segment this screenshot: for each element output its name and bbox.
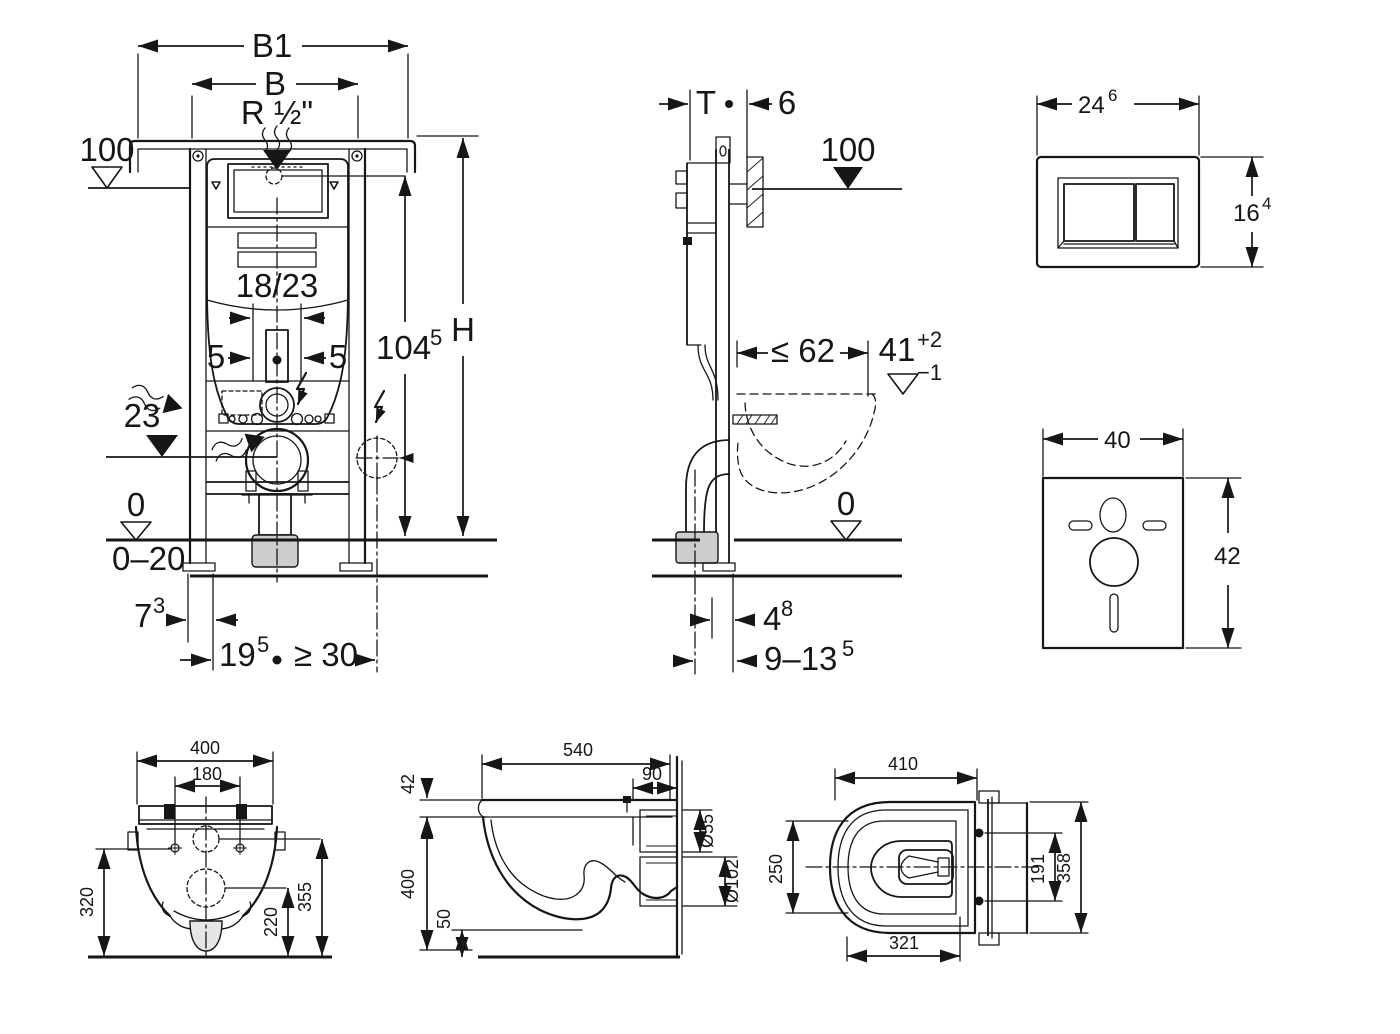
dim-wc-180: 180 — [175, 764, 240, 843]
dim-wc-320: 320 — [77, 849, 104, 956]
dim-level-100-side: 100 — [820, 131, 875, 168]
dim-9-13-label: 9–13 — [764, 640, 837, 677]
dim-355-label: 355 — [295, 882, 315, 912]
frame-front-view: B1 B R ½" 100 18/23 5 5 23 — [79, 27, 497, 673]
dim-wc-321: 321 — [847, 917, 960, 961]
dim-41-label: 41 — [879, 331, 916, 368]
dim-b1-label: B1 — [252, 27, 292, 64]
lightning-icon — [375, 391, 384, 422]
wc-plan-view: 410 250 191 — [766, 754, 1088, 961]
frame-side-linework — [652, 137, 902, 674]
dim-180-label: 180 — [192, 764, 222, 784]
dim-41-tol-dn: −1 — [917, 360, 942, 385]
dim-wc-220: 220 — [261, 888, 288, 956]
dim-pad-width: 40 — [1043, 427, 1183, 476]
dim-50-label: 50 — [434, 909, 454, 929]
dim-9-13-sup: 5 — [842, 636, 854, 661]
dim-wc-drain-dia: Ø102 — [683, 857, 742, 906]
dim-level-100: 100 — [79, 131, 134, 168]
dim-19-sup: 5 — [257, 632, 269, 657]
dim-4-label: 4 — [763, 600, 781, 637]
technical-drawing-page: B1 B R ½" 100 18/23 5 5 23 — [0, 0, 1400, 1034]
dim-wc-410: 410 — [835, 754, 977, 800]
dim-0-20-label: 0–20 — [112, 540, 185, 577]
dim-7-sup: 3 — [153, 593, 165, 618]
dim-358-label: 358 — [1054, 853, 1074, 883]
heat-arrow-icon — [211, 427, 269, 465]
level-marker-0-side: 0 — [831, 485, 861, 540]
dim-wc-42: 42 — [398, 774, 486, 833]
dim-plate-width: 24 6 — [1037, 86, 1199, 155]
dim-540-label: 540 — [563, 740, 593, 760]
dim-o102-label: Ø102 — [722, 859, 742, 903]
dim-220-label: 220 — [261, 907, 281, 937]
dim-9-13: 9–13 5 — [675, 636, 854, 677]
dim-16-label: 16 — [1233, 200, 1260, 227]
dim-5-left: 5 — [207, 338, 225, 375]
dim-t-label: T — [696, 84, 716, 121]
dim-90-label: 90 — [642, 764, 662, 784]
wc-side-view: 540 90 42 — [398, 740, 742, 957]
dim-wc-355: 355 — [295, 839, 322, 956]
dim-0-label: 0 — [127, 486, 145, 523]
installation-drawing: B1 B R ½" 100 18/23 5 5 23 — [0, 0, 1400, 1034]
dim-410-label: 410 — [888, 754, 918, 774]
dim-5-right: 5 — [329, 338, 347, 375]
dim-6-label: 6 — [778, 84, 796, 121]
dim-7-label: 7 — [134, 597, 152, 634]
dim-62: ≤ 62 — [737, 332, 868, 396]
dim-104-sup: 5 — [430, 325, 442, 350]
dim-24-sup: 6 — [1108, 86, 1117, 105]
dim-41-tol-up: +2 — [917, 327, 942, 352]
dim-18-23-label: 18/23 — [236, 267, 319, 304]
flush-plate-body — [1037, 157, 1199, 267]
sound-pad-view: 40 42 — [1043, 427, 1241, 648]
dim-30-label: ≥ 30 — [294, 636, 358, 673]
dim-41: 41 +2 −1 — [879, 327, 942, 394]
sound-pad-body — [1043, 478, 1183, 648]
wc-plan-linework — [806, 791, 1042, 945]
level-marker-100-front: 100 — [79, 131, 190, 188]
dim-h-label: H — [451, 311, 475, 348]
dim-62-label: ≤ 62 — [771, 332, 835, 369]
dim-42-seat-label: 42 — [398, 774, 418, 794]
dim-400-side-label: 400 — [398, 869, 418, 899]
dim-104-label: 104 — [376, 329, 431, 366]
frame-side-view: T 6 100 ≤ 62 41 +2 −1 0 4 — [652, 84, 942, 677]
water-connection-steam-icon — [263, 126, 292, 184]
dim-24-label: 24 — [1078, 92, 1105, 119]
dim-pad-height: 42 — [1186, 478, 1241, 648]
flush-button-large — [1064, 184, 1134, 241]
level-marker-100-side: 100 — [752, 131, 902, 189]
dim-16-sup: 4 — [1262, 194, 1271, 213]
level-marker-0-front: 0 0–20 — [112, 486, 185, 577]
flush-button-small — [1136, 184, 1174, 241]
dim-wc-flush-dia: Ø55 — [683, 810, 717, 852]
dim-400-label: 400 — [190, 738, 220, 758]
dim-19-label: 19 — [219, 636, 256, 673]
flush-plate-view: 24 6 16 4 — [1037, 86, 1271, 267]
dim-t-6: T 6 — [659, 84, 796, 160]
dim-40-label: 40 — [1104, 427, 1131, 454]
dim-plate-height: 16 4 — [1201, 157, 1271, 267]
dim-42-label: 42 — [1214, 543, 1241, 570]
dim-o55-label: Ø55 — [697, 814, 717, 848]
dim-0-side: 0 — [837, 485, 855, 522]
fixing-bolt-dot — [975, 897, 984, 906]
wc-rear-linework — [88, 797, 332, 957]
dim-321-label: 321 — [889, 933, 919, 953]
dim-320-label: 320 — [77, 887, 97, 917]
fixing-bolt-dot — [975, 829, 984, 838]
dim-23-label: 23 — [124, 397, 161, 434]
wc-rear-view: 400 180 — [77, 738, 332, 957]
dim-250-label: 250 — [766, 854, 786, 884]
dim-4-sup: 8 — [781, 596, 793, 621]
wc-side-linework — [478, 757, 682, 957]
dim-191-label: 191 — [1028, 854, 1048, 884]
wc-outline-dashed — [737, 394, 875, 493]
dim-water-connection: R ½" — [241, 94, 313, 131]
electrical-box-icon — [356, 436, 411, 480]
